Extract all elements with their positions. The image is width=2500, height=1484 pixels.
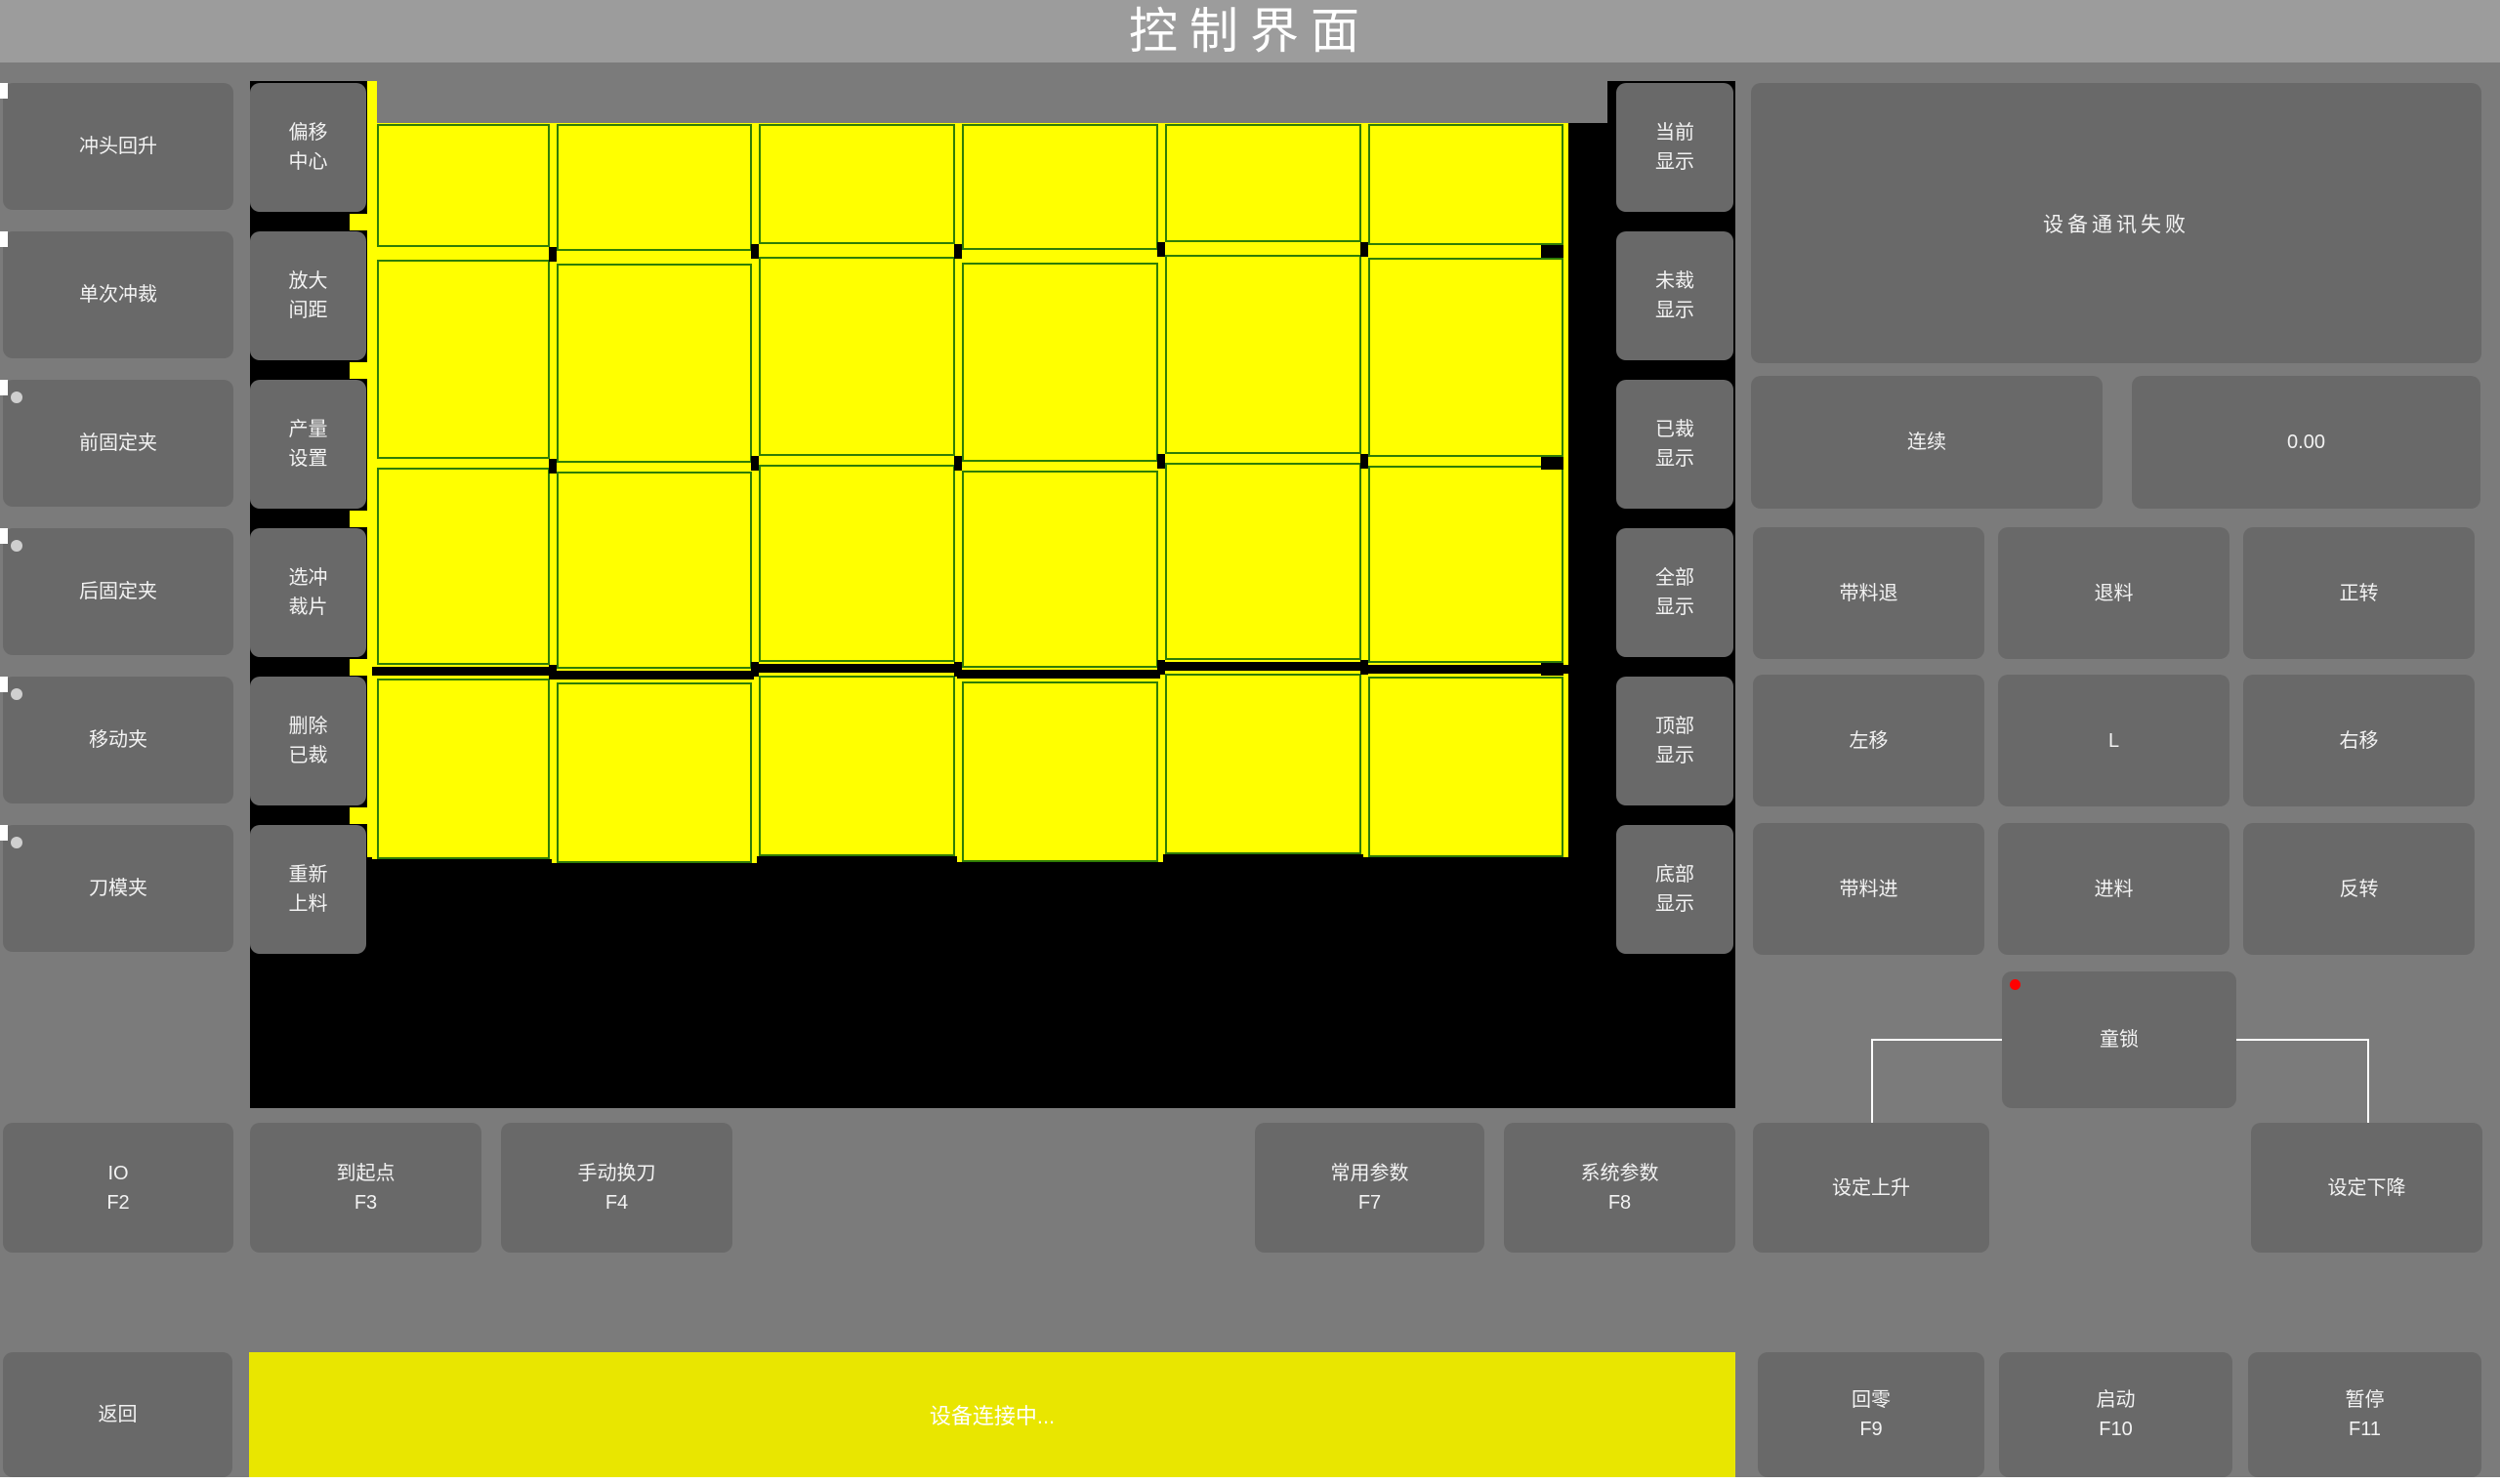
title-bar: 控制界面 xyxy=(0,0,2500,62)
bottom-button-label: 启动F10 xyxy=(2097,1385,2136,1444)
connection-status-bar: 设备连接中... xyxy=(249,1352,1735,1477)
piece-cell[interactable] xyxy=(377,679,550,859)
piece-cell[interactable] xyxy=(759,124,955,244)
sheet-top-margin xyxy=(377,81,1607,123)
display-filter-button-3[interactable]: 已裁显示 xyxy=(1616,380,1733,509)
left-button-label: 冲头回升 xyxy=(79,132,157,161)
junction-notch xyxy=(1157,660,1165,675)
left-edge-tick xyxy=(0,825,8,841)
piece-cell[interactable] xyxy=(962,471,1158,668)
tool-button-6[interactable]: 重新上料 xyxy=(250,825,366,954)
sheet-right-notch xyxy=(1541,457,1563,470)
jog-button-label: 左移 xyxy=(1850,726,1889,756)
piece-cell[interactable] xyxy=(557,124,752,251)
left-edge-tick xyxy=(0,231,8,247)
left-button-1[interactable]: 冲头回升 xyxy=(3,83,233,210)
fkey-button-label: 到起点F3 xyxy=(337,1159,396,1217)
tool-button-label: 产量设置 xyxy=(289,415,328,474)
display-filter-line: 显示 xyxy=(1655,444,1694,474)
tool-button-4[interactable]: 选冲裁片 xyxy=(250,528,366,657)
junction-notch xyxy=(549,665,557,680)
left-button-6[interactable]: 刀模夹 xyxy=(3,825,233,952)
tool-button-line: 中心 xyxy=(289,147,328,177)
bottom-button-f10[interactable]: 启动F10 xyxy=(1999,1352,2232,1477)
display-filter-line: 显示 xyxy=(1655,741,1694,770)
left-button-label: 移动夹 xyxy=(89,725,147,755)
fkey-label-text: 手动换刀 xyxy=(578,1159,656,1188)
device-message-panel: 设备通讯失败 xyxy=(1751,83,2481,363)
display-filter-label: 全部显示 xyxy=(1655,563,1694,622)
junction-notch xyxy=(1360,660,1368,675)
row-separator-dark xyxy=(372,667,555,676)
mode-continuous-button[interactable]: 连续 xyxy=(1751,376,2103,509)
display-filter-line: 显示 xyxy=(1655,593,1694,622)
piece-cell[interactable] xyxy=(759,676,955,856)
jog-button-label: 带料进 xyxy=(1840,875,1898,904)
bottom-divider xyxy=(0,1477,2500,1484)
left-button-2[interactable]: 单次冲裁 xyxy=(3,231,233,358)
tool-button-line: 选冲 xyxy=(289,563,328,593)
display-filter-line: 显示 xyxy=(1655,147,1694,177)
display-filter-line: 显示 xyxy=(1655,889,1694,919)
piece-cell[interactable] xyxy=(1368,466,1563,663)
value-display: 0.00 xyxy=(2132,376,2480,509)
left-button-5[interactable]: 移动夹 xyxy=(3,677,233,804)
row-separator-dark xyxy=(957,670,1163,679)
piece-cell[interactable] xyxy=(759,257,955,456)
feed-material-button[interactable]: 进料 xyxy=(1998,823,2229,955)
tool-button-line: 上料 xyxy=(289,889,328,919)
junction-notch xyxy=(751,662,759,677)
left-edge-tick xyxy=(0,677,8,692)
tool-button-label: 重新上料 xyxy=(289,860,328,919)
bottom-button-label: 暂停F11 xyxy=(2346,1385,2385,1444)
junction-notch xyxy=(549,459,557,474)
fkey-label-text: 常用参数 xyxy=(1331,1159,1409,1188)
sheet-gap-sliver xyxy=(350,511,367,527)
set-lower-label: 设定下降 xyxy=(2328,1174,2406,1203)
sheet-gap-sliver xyxy=(350,362,367,379)
row-separator-dark xyxy=(552,671,757,680)
clamp-indicator-dot xyxy=(11,688,22,700)
piece-cell[interactable] xyxy=(557,682,752,863)
connection-status-text: 设备连接中... xyxy=(930,1399,1055,1430)
retract-material-button[interactable]: 退料 xyxy=(1998,527,2229,659)
piece-cell[interactable] xyxy=(759,465,955,662)
display-filter-label: 顶部显示 xyxy=(1655,712,1694,770)
fkey-label-text: 系统参数 xyxy=(1581,1159,1659,1188)
display-filter-line: 顶部 xyxy=(1655,712,1694,741)
piece-cell[interactable] xyxy=(1368,124,1563,245)
display-filter-line: 底部 xyxy=(1655,860,1694,889)
fkey-button-f4[interactable]: 手动换刀F4 xyxy=(501,1123,732,1253)
tool-button-label: 删除已裁 xyxy=(289,712,328,770)
back-button[interactable]: 返回 xyxy=(3,1352,232,1477)
tool-button-line: 重新 xyxy=(289,860,328,889)
piece-cell[interactable] xyxy=(962,263,1158,462)
nesting-canvas[interactable] xyxy=(250,81,1735,1108)
piece-cell[interactable] xyxy=(557,472,752,669)
tool-button-line: 删除 xyxy=(289,712,328,741)
junction-notch xyxy=(1157,454,1165,469)
sheet-gap-sliver xyxy=(350,214,367,230)
left-edge-tick xyxy=(0,380,8,395)
bracket-line-right xyxy=(2367,1039,2369,1123)
junction-notch xyxy=(954,456,962,471)
jog-button-label: 退料 xyxy=(2095,579,2134,608)
feed-in-with-material-button[interactable]: 带料进 xyxy=(1753,823,1984,955)
jog-button-label: L xyxy=(2108,726,2119,756)
tool-button-5[interactable]: 删除已裁 xyxy=(250,677,366,805)
left-button-label: 后固定夹 xyxy=(79,577,157,606)
fkey-label-key: F7 xyxy=(1331,1188,1409,1217)
piece-cell[interactable] xyxy=(377,124,550,247)
bottom-label-key: F10 xyxy=(2097,1415,2136,1444)
left-edge-tick xyxy=(0,83,8,99)
device-message-text: 设备通讯失败 xyxy=(2043,209,2189,238)
display-filter-line: 显示 xyxy=(1655,296,1694,325)
piece-cell[interactable] xyxy=(377,260,550,459)
display-filter-line: 全部 xyxy=(1655,563,1694,593)
tool-button-line: 间距 xyxy=(289,296,328,325)
rotate-reverse-button[interactable]: 反转 xyxy=(2243,823,2475,955)
piece-cell[interactable] xyxy=(1165,124,1361,242)
tool-button-label: 放大间距 xyxy=(289,267,328,325)
display-filter-button-1[interactable]: 当前显示 xyxy=(1616,83,1733,212)
piece-cell[interactable] xyxy=(962,681,1158,862)
display-filter-label: 已裁显示 xyxy=(1655,415,1694,474)
tool-button-line: 放大 xyxy=(289,267,328,296)
alarm-dot xyxy=(2010,979,2021,990)
bottom-label-text: 暂停 xyxy=(2346,1385,2385,1415)
bottom-label-key: F11 xyxy=(2346,1415,2385,1444)
junction-notch xyxy=(1157,242,1165,257)
left-edge-tick xyxy=(0,528,8,544)
sheet-gap-sliver xyxy=(350,659,367,676)
l-button[interactable]: L xyxy=(1998,675,2229,806)
tool-button-2[interactable]: 放大间距 xyxy=(250,231,366,360)
left-button-4[interactable]: 后固定夹 xyxy=(3,528,233,655)
left-button-label: 刀模夹 xyxy=(89,874,147,903)
sheet-gap-sliver xyxy=(350,807,367,824)
left-button-3[interactable]: 前固定夹 xyxy=(3,380,233,507)
fkey-label-text: 到起点 xyxy=(337,1159,396,1188)
bracket-line-left xyxy=(1871,1039,1873,1123)
jog-button-label: 带料退 xyxy=(1840,579,1898,608)
tool-button-line: 偏移 xyxy=(289,118,328,147)
clamp-indicator-dot xyxy=(11,837,22,848)
bottom-button-f11[interactable]: 暂停F11 xyxy=(2248,1352,2481,1477)
junction-notch xyxy=(751,244,759,259)
junction-notch xyxy=(549,247,557,262)
value-display-text: 0.00 xyxy=(2287,428,2325,457)
junction-notch xyxy=(954,244,962,259)
fkey-label-text: IO xyxy=(106,1159,129,1188)
mode-continuous-label: 连续 xyxy=(1907,428,1946,457)
fkey-label-key: F3 xyxy=(337,1188,396,1217)
tool-button-label: 选冲裁片 xyxy=(289,563,328,622)
row-separator-dark xyxy=(1363,665,1568,674)
piece-cell[interactable] xyxy=(1165,674,1361,854)
fkey-button-f8[interactable]: 系统参数F8 xyxy=(1504,1123,1735,1253)
piece-cell[interactable] xyxy=(962,124,1158,250)
fkey-button-f7[interactable]: 常用参数F7 xyxy=(1255,1123,1484,1253)
display-filter-line: 未裁 xyxy=(1655,267,1694,296)
junction-notch xyxy=(954,662,962,677)
rotate-forward-button[interactable]: 正转 xyxy=(2243,527,2475,659)
display-filter-line: 当前 xyxy=(1655,118,1694,147)
tool-button-line: 裁片 xyxy=(289,593,328,622)
fkey-button-label: 手动换刀F4 xyxy=(578,1159,656,1217)
child-lock-label: 童锁 xyxy=(2100,1025,2139,1054)
jog-button-label: 正转 xyxy=(2340,579,2379,608)
left-button-label: 前固定夹 xyxy=(79,429,157,458)
feed-back-with-material-button[interactable]: 带料退 xyxy=(1753,527,1984,659)
page-title: 控制界面 xyxy=(1129,7,1371,56)
tool-button-line: 已裁 xyxy=(289,741,328,770)
left-button-label: 单次冲裁 xyxy=(79,280,157,309)
junction-notch xyxy=(751,456,759,471)
tool-button-line: 产量 xyxy=(289,415,328,444)
row-separator-dark xyxy=(1160,662,1366,671)
piece-cell[interactable] xyxy=(1165,463,1361,660)
set-rise-button[interactable]: 设定上升 xyxy=(1753,1123,1989,1253)
piece-cell[interactable] xyxy=(1368,258,1563,457)
jog-button-label: 右移 xyxy=(2340,726,2379,756)
move-right-button[interactable]: 右移 xyxy=(2243,675,2475,806)
bottom-label-text: 回零 xyxy=(1852,1385,1891,1415)
bottom-label-key: F9 xyxy=(1852,1415,1891,1444)
fkey-label-key: F8 xyxy=(1581,1188,1659,1217)
clamp-indicator-dot xyxy=(11,392,22,403)
bottom-button-label: 回零F9 xyxy=(1852,1385,1891,1444)
display-filter-line: 已裁 xyxy=(1655,415,1694,444)
display-filter-button-6[interactable]: 底部显示 xyxy=(1616,825,1733,954)
jog-button-label: 进料 xyxy=(2095,875,2134,904)
sheet-right-notch xyxy=(1541,245,1563,258)
tool-button-3[interactable]: 产量设置 xyxy=(250,380,366,509)
piece-cell[interactable] xyxy=(1368,677,1563,857)
fkey-button-f3[interactable]: 到起点F3 xyxy=(250,1123,481,1253)
fkey-label-key: F2 xyxy=(106,1188,129,1217)
back-button-label: 返回 xyxy=(99,1400,138,1429)
fkey-button-label: IOF2 xyxy=(106,1159,129,1217)
piece-cell[interactable] xyxy=(557,264,752,463)
tool-button-label: 偏移中心 xyxy=(289,118,328,177)
fkey-button-f2[interactable]: IOF2 xyxy=(3,1123,233,1253)
fkey-button-label: 系统参数F8 xyxy=(1581,1159,1659,1217)
child-lock-button[interactable]: 童锁 xyxy=(2002,971,2236,1108)
set-rise-label: 设定上升 xyxy=(1832,1174,1910,1203)
fkey-label-key: F4 xyxy=(578,1188,656,1217)
display-filter-label: 底部显示 xyxy=(1655,860,1694,919)
sheet-right-notch xyxy=(1541,663,1563,676)
set-lower-button[interactable]: 设定下降 xyxy=(2251,1123,2482,1253)
row-separator-dark xyxy=(754,664,960,673)
tool-button-line: 设置 xyxy=(289,444,328,474)
display-filter-button-4[interactable]: 全部显示 xyxy=(1616,528,1733,657)
clamp-indicator-dot xyxy=(11,540,22,552)
junction-notch xyxy=(1360,454,1368,469)
bottom-label-text: 启动 xyxy=(2097,1385,2136,1415)
fkey-button-label: 常用参数F7 xyxy=(1331,1159,1409,1217)
piece-cell[interactable] xyxy=(1165,255,1361,454)
tool-button-1[interactable]: 偏移中心 xyxy=(250,83,366,212)
piece-cell[interactable] xyxy=(377,468,550,665)
display-filter-label: 未裁显示 xyxy=(1655,267,1694,325)
display-filter-label: 当前显示 xyxy=(1655,118,1694,177)
display-filter-button-2[interactable]: 未裁显示 xyxy=(1616,231,1733,360)
junction-notch xyxy=(1360,242,1368,257)
move-left-button[interactable]: 左移 xyxy=(1753,675,1984,806)
bottom-button-f9[interactable]: 回零F9 xyxy=(1758,1352,1984,1477)
display-filter-button-5[interactable]: 顶部显示 xyxy=(1616,677,1733,805)
jog-button-label: 反转 xyxy=(2340,875,2379,904)
